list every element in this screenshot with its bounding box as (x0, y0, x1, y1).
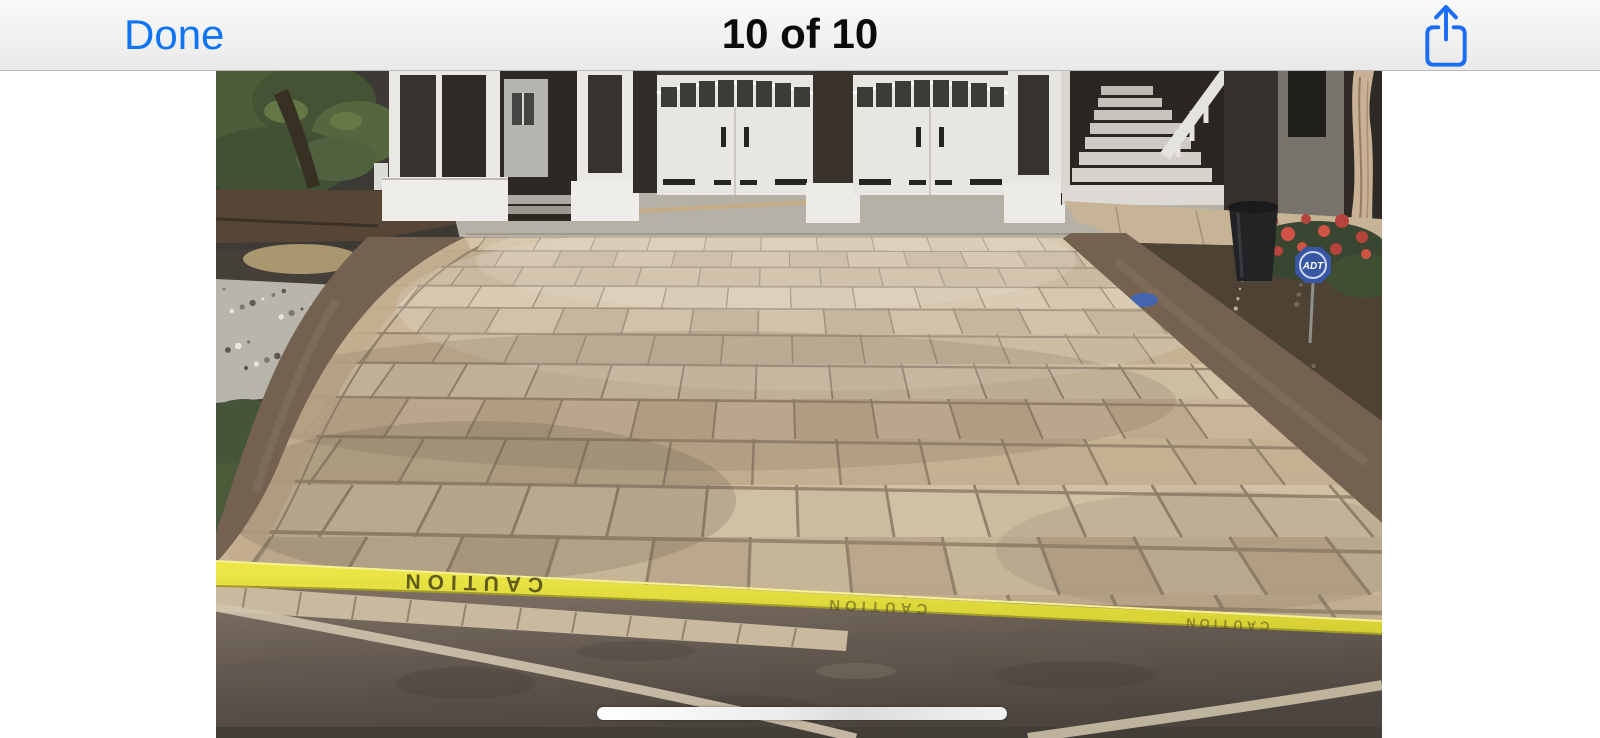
share-button[interactable] (1418, 2, 1474, 68)
navigation-bar: Done 10 of 10 (0, 0, 1600, 71)
photo-viewport[interactable]: ADT CAUTION CAUTION (216, 71, 1382, 738)
done-button[interactable]: Done (124, 0, 224, 70)
home-indicator[interactable] (597, 707, 1007, 720)
driveway-photo: ADT CAUTION CAUTION (216, 71, 1382, 738)
photo-haze (216, 71, 1382, 738)
page-counter: 10 of 10 (0, 0, 1600, 70)
share-icon (1418, 2, 1474, 68)
